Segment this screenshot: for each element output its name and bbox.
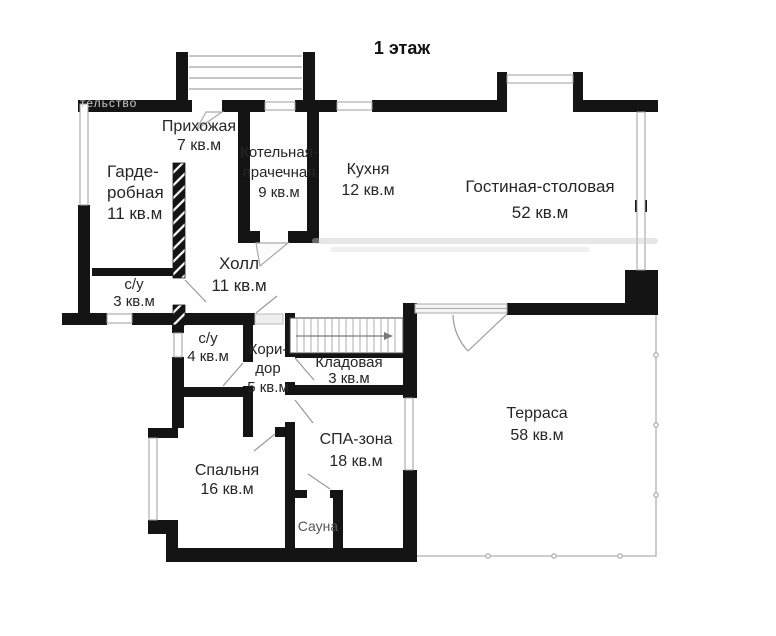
terrace-door-arc: [453, 315, 468, 351]
wall-segment: [92, 268, 173, 276]
room-area: 18 кв.м: [320, 451, 393, 473]
room-label-terrasa: Терраса 58 кв.м: [506, 403, 567, 447]
room-label-spa: СПА-зона 18 кв.м: [320, 429, 393, 473]
terrace-tick: [618, 554, 622, 558]
room-name: Прихожая: [162, 117, 236, 136]
door-sill: [255, 314, 283, 324]
window: [107, 314, 132, 323]
watermark-band: [312, 238, 658, 252]
window: [637, 112, 645, 270]
room-name: СПА-зона: [320, 429, 393, 451]
wall-segment: [148, 520, 178, 534]
porch-steps: [189, 56, 302, 89]
room-area: 7 кв.м: [162, 136, 236, 155]
wall-segment: [403, 303, 417, 398]
wardrobe-door-leaf: [185, 280, 206, 302]
room-name: Кухня: [341, 159, 394, 180]
window: [149, 438, 157, 520]
window: [507, 75, 573, 83]
room-area: 16 кв.м: [195, 480, 259, 499]
wall-segment: [372, 100, 497, 112]
room-area: 11 кв.м: [107, 203, 164, 224]
room-name: Гарде-: [107, 161, 164, 182]
terrace-tick: [654, 353, 658, 357]
terrace-tick: [654, 493, 658, 497]
sauna-door-leaf: [308, 474, 330, 489]
wall-segment: [583, 100, 658, 112]
wall-segment: [507, 303, 625, 315]
wall-segment: [166, 534, 178, 550]
room-name: прачечная: [240, 163, 318, 183]
wall-segment: [166, 548, 417, 562]
staircase: [290, 318, 403, 353]
page-title: 1 этаж: [374, 38, 430, 59]
wall-segment: [238, 231, 260, 243]
room-name: дор: [247, 359, 289, 378]
room-label-prihozhaya: Прихожая 7 кв.м: [162, 117, 236, 155]
room-area: 9 кв.м: [240, 183, 318, 203]
spa-door-leaf: [295, 400, 313, 423]
wall-segment: [148, 428, 178, 438]
wall-segment: [295, 100, 337, 112]
wall-segment: [173, 305, 185, 325]
room-name: Кори-: [247, 340, 289, 359]
wall-segment: [172, 357, 184, 428]
room-area: 4 кв.м: [187, 348, 229, 366]
room-name: Кладовая: [315, 355, 382, 371]
bathroom4-door-leaf: [223, 363, 243, 386]
wall-segment: [173, 387, 253, 397]
watermark-strip: [330, 247, 590, 252]
wall-segment: [132, 313, 255, 325]
chimney-column: [625, 270, 658, 315]
room-name: Терраса: [506, 403, 567, 425]
watermark-text: тельство: [80, 96, 137, 110]
window: [405, 398, 413, 470]
room-label-su3: с/у 3 кв.м: [113, 276, 155, 310]
wall-segment: [243, 427, 253, 437]
hall-corridor-door-leaf: [256, 296, 277, 313]
room-label-koridor: Кори- дор 5 кв.м: [247, 340, 289, 397]
porch-pier: [303, 52, 315, 102]
wall-segment: [78, 205, 90, 325]
bay-pier: [573, 72, 583, 112]
room-label-gostinaya: Гостиная-столовая 52 кв.м: [465, 174, 614, 226]
wall-segment: [295, 490, 307, 498]
terrace-tick: [486, 554, 490, 558]
room-name: Котельная-: [240, 143, 318, 163]
hatched-wall: [173, 163, 185, 325]
room-area: 5 кв.м: [247, 378, 289, 397]
room-label-holl: Холл 11 кв.м: [211, 253, 266, 297]
room-name: робная: [107, 182, 164, 203]
terrace-tick: [552, 554, 556, 558]
window: [80, 104, 88, 205]
room-area: 58 кв.м: [506, 425, 567, 447]
room-name: Гостиная-столовая: [465, 174, 614, 200]
room-label-kuhnya: Кухня 12 кв.м: [341, 159, 394, 201]
room-label-kotelnaya: Котельная- прачечная 9 кв.м: [240, 143, 318, 203]
wall-segment: [403, 470, 417, 550]
room-label-sauna: Сауна: [298, 518, 338, 534]
window: [265, 102, 295, 110]
wall-segment: [285, 422, 295, 548]
floor-plan: 1 этаж тельство Прихожая 7 кв.м Гарде- р…: [0, 0, 776, 636]
room-area: 12 кв.м: [341, 180, 394, 201]
bedroom-door-leaf: [254, 434, 275, 451]
room-label-spalnya: Спальня 16 кв.м: [195, 461, 259, 499]
wall-segment: [275, 427, 295, 437]
wall-segment: [172, 325, 184, 333]
room-name: Спальня: [195, 461, 259, 480]
room-name: с/у: [113, 276, 155, 293]
room-label-garderobnaya: Гарде- робная 11 кв.м: [107, 161, 164, 224]
room-name: с/у: [187, 330, 229, 348]
watermark-strip: [312, 238, 658, 244]
porch-pier: [176, 52, 188, 102]
room-area: 11 кв.м: [211, 275, 266, 297]
wall-segment: [62, 313, 107, 325]
bay-pier: [497, 72, 507, 112]
room-name: Холл: [211, 253, 266, 275]
room-area: 3 кв.м: [113, 293, 155, 310]
terrace-door-leaf: [468, 314, 507, 351]
storage-door-leaf: [295, 358, 314, 380]
room-area: 3 кв.м: [315, 371, 382, 387]
window: [174, 333, 182, 357]
wall-segment: [222, 100, 265, 112]
room-label-su4: с/у 4 кв.м: [187, 330, 229, 366]
window: [337, 102, 372, 110]
room-label-kladovaya: Кладовая 3 кв.м: [315, 355, 382, 387]
room-area: 52 кв.м: [465, 200, 614, 226]
wall-segment: [173, 163, 185, 278]
room-name: Сауна: [298, 518, 338, 534]
terrace-tick: [654, 423, 658, 427]
